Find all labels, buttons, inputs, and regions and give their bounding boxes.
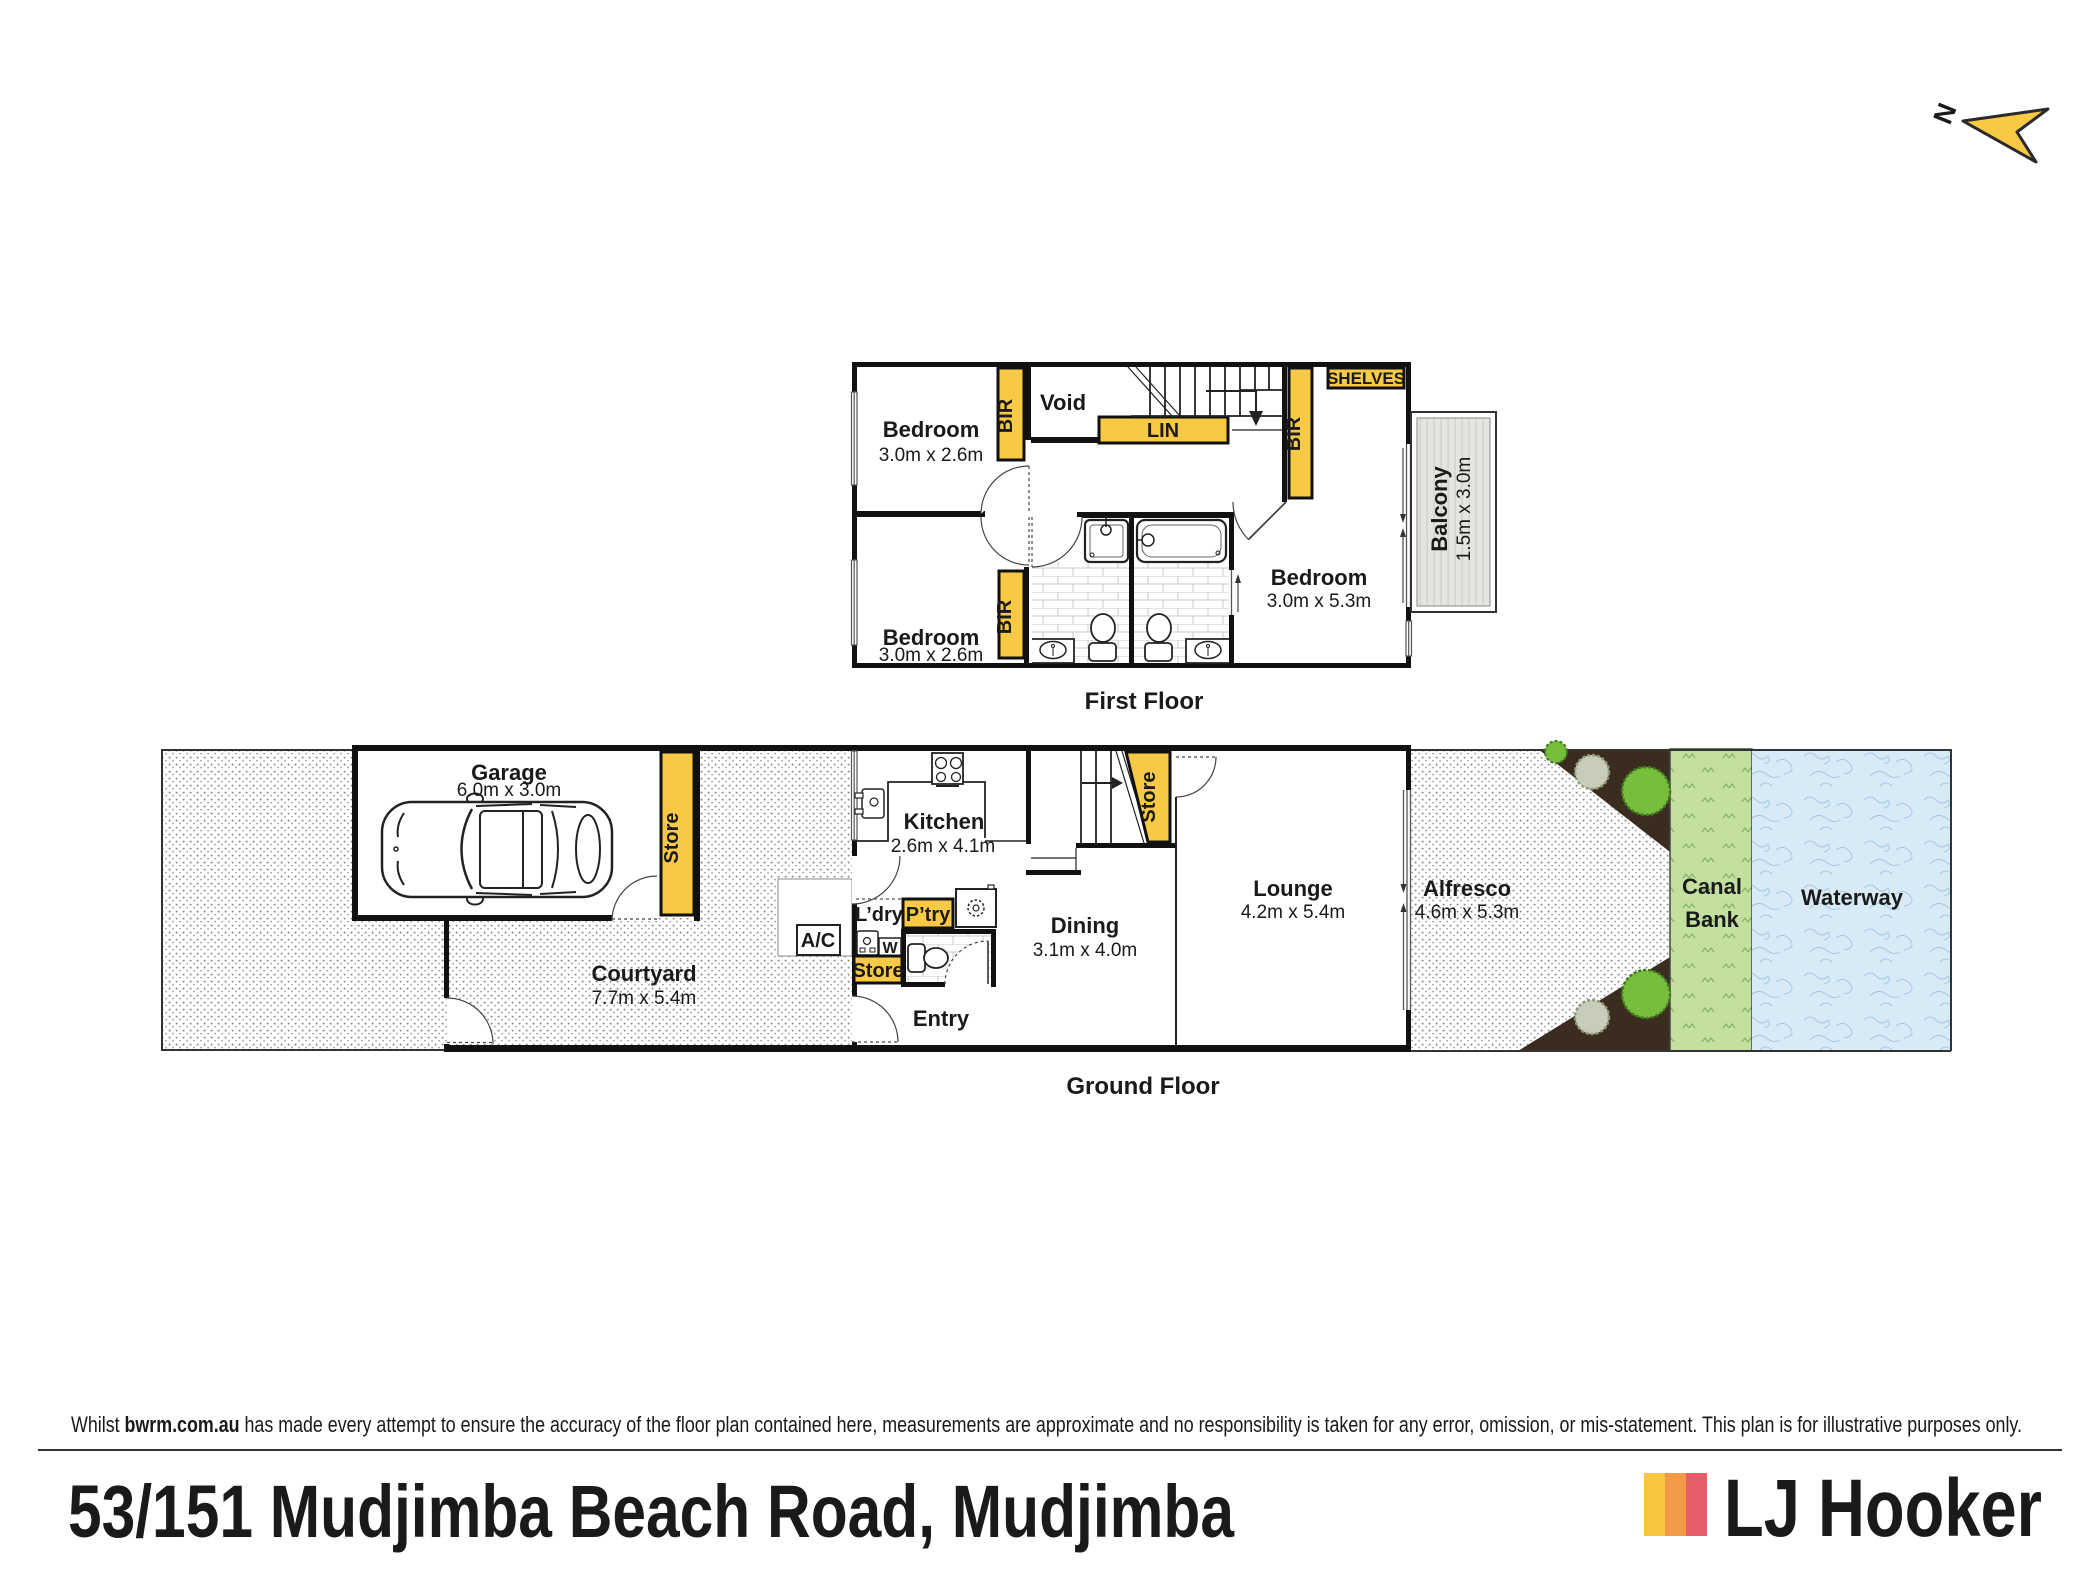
svg-text:SHELVES: SHELVES xyxy=(1327,369,1405,388)
svg-text:BIR: BIR xyxy=(994,599,1016,634)
svg-text:3.0m x 2.6m: 3.0m x 2.6m xyxy=(879,645,984,666)
svg-text:1.5m x 3.0m: 1.5m x 3.0m xyxy=(1454,457,1475,562)
svg-text:Entry: Entry xyxy=(913,1006,970,1031)
svg-text:Lounge: Lounge xyxy=(1253,876,1332,901)
svg-text:P’try: P’try xyxy=(906,904,951,926)
svg-text:2.6m x 4.1m: 2.6m x 4.1m xyxy=(891,836,996,857)
svg-text:Kitchen: Kitchen xyxy=(904,809,985,834)
svg-text:Waterway: Waterway xyxy=(1801,885,1904,910)
svg-text:LIN: LIN xyxy=(1147,420,1179,442)
svg-text:3.0m x 5.3m: 3.0m x 5.3m xyxy=(1267,591,1372,612)
svg-text:LJ Hooker: LJ Hooker xyxy=(1724,1463,2042,1554)
svg-text:Ground Floor: Ground Floor xyxy=(1066,1073,1219,1100)
svg-text:53/151 Mudjimba Beach Road, Mu: 53/151 Mudjimba Beach Road, Mudjimba xyxy=(68,1470,1235,1553)
svg-text:Bedroom: Bedroom xyxy=(1271,565,1368,590)
svg-text:BIR: BIR xyxy=(995,398,1017,433)
svg-text:3.0m x 2.6m: 3.0m x 2.6m xyxy=(879,445,984,466)
svg-text:Whilst bwrm.com.au has made ev: Whilst bwrm.com.au has made every attemp… xyxy=(71,1412,2022,1437)
svg-text:Store: Store xyxy=(661,812,683,863)
svg-text:L’dry: L’dry xyxy=(855,904,904,926)
svg-text:Bedroom: Bedroom xyxy=(883,417,980,442)
svg-text:4.6m x 5.3m: 4.6m x 5.3m xyxy=(1415,902,1520,923)
svg-text:4.2m x 5.4m: 4.2m x 5.4m xyxy=(1241,902,1346,923)
svg-text:W: W xyxy=(882,940,898,957)
svg-text:7.7m x 5.4m: 7.7m x 5.4m xyxy=(592,988,697,1009)
svg-text:6.0m x 3.0m: 6.0m x 3.0m xyxy=(457,780,562,801)
svg-text:Canal: Canal xyxy=(1682,874,1742,899)
svg-text:Dining: Dining xyxy=(1051,913,1119,938)
svg-text:BIR: BIR xyxy=(1283,416,1305,451)
svg-text:Store: Store xyxy=(1138,771,1160,822)
svg-text:Balcony: Balcony xyxy=(1427,465,1452,551)
svg-text:Store: Store xyxy=(852,960,903,982)
svg-text:Bank: Bank xyxy=(1685,907,1740,932)
svg-text:First Floor: First Floor xyxy=(1085,688,1204,715)
svg-text:A/C: A/C xyxy=(801,930,835,952)
svg-text:Courtyard: Courtyard xyxy=(591,961,696,986)
svg-text:Alfresco: Alfresco xyxy=(1423,876,1511,901)
svg-text:Void: Void xyxy=(1040,390,1086,415)
svg-text:3.1m x 4.0m: 3.1m x 4.0m xyxy=(1033,940,1138,961)
